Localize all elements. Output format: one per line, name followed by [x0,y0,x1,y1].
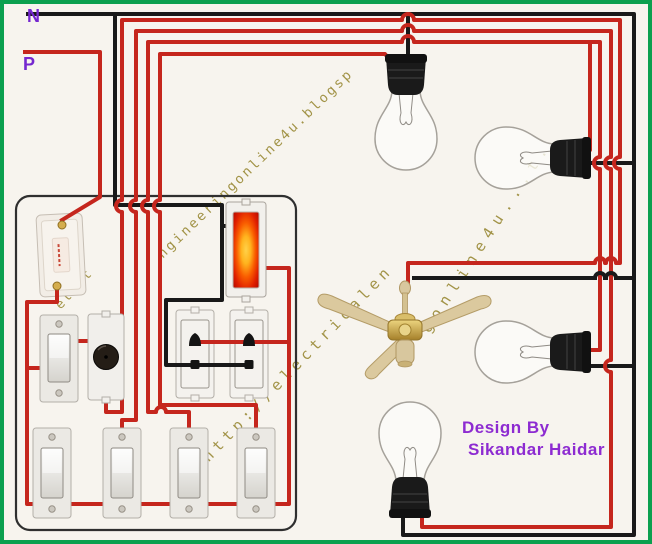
wire-phase-supply [25,52,100,220]
fuse-bottom-terminal [53,282,61,290]
wiring-diagram [0,0,652,544]
ceiling-fan [318,281,491,379]
socket-1 [176,307,214,401]
rocker-switch-2 [103,428,141,518]
fan-blade-left [318,294,394,333]
phase-label: P [23,54,35,75]
fan-switch [40,315,78,402]
neutral-label: N [27,6,40,27]
rocker-switch-3 [170,428,208,518]
indicator-lamp [226,199,266,302]
socket2-neutral-pin [245,360,254,369]
fan-blade-right [416,296,491,333]
rocker-switch-4 [237,428,275,518]
wire-bulb2-branch [578,42,590,150]
socket1-neutral-pin [191,360,200,369]
bulb-1 [375,54,437,170]
bulb-3 [475,321,591,383]
credit-line1: Design By [462,418,550,438]
fuse-top-terminal [58,221,66,229]
bulb-4 [379,402,441,518]
rocker-switch-1 [33,428,71,518]
wiring-diagram-canvas: elect ngineeringonline4u.blogsp gonline4… [0,0,652,544]
indicator-glow [233,212,259,288]
bulb-2 [475,127,591,189]
fan-regulator [88,311,124,403]
socket-2 [230,307,268,401]
credit-line2: Sikandar Haidar [468,440,605,460]
